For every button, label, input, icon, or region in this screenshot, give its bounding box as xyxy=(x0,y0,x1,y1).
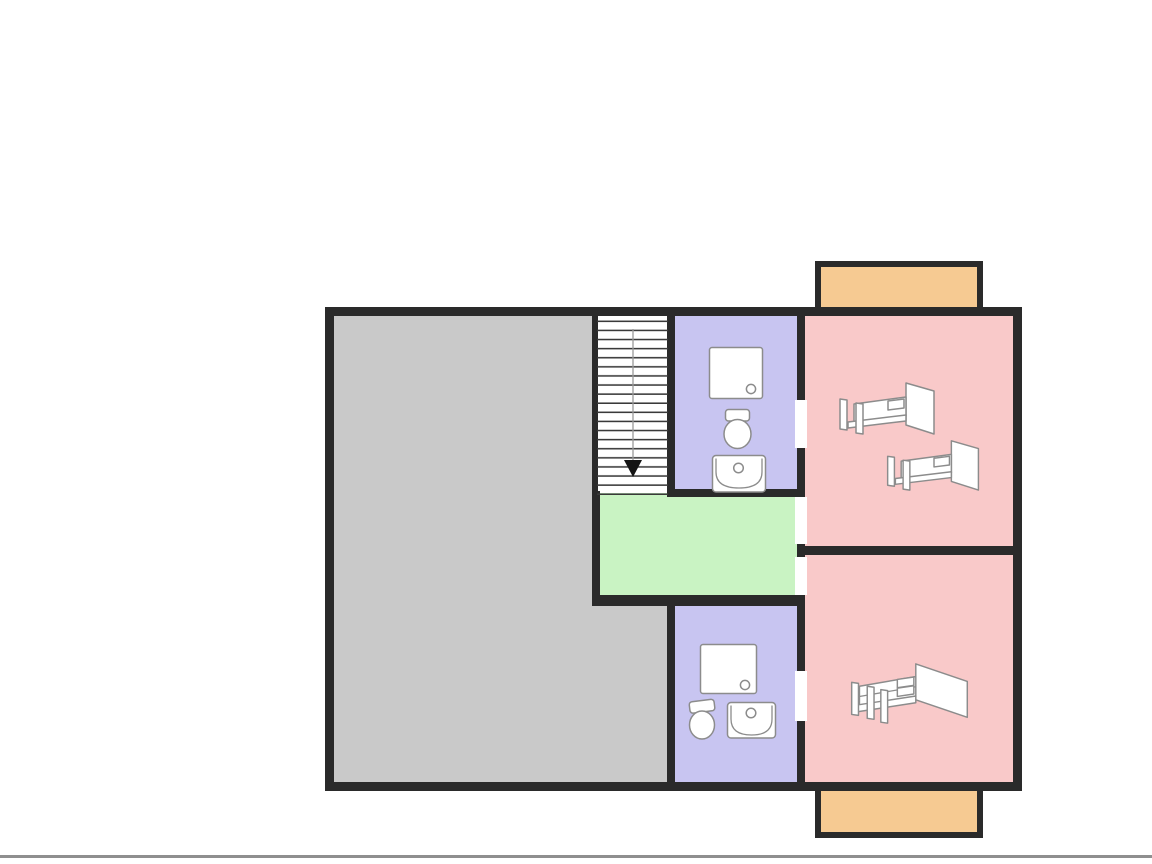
wall-bathroom-bottom-left xyxy=(667,600,675,791)
door-opening-bedroom-bottom xyxy=(795,557,807,595)
toilet-icon xyxy=(724,410,751,449)
door-opening-bathroom-bottom xyxy=(795,671,807,721)
wall-stairs-right xyxy=(667,313,675,497)
door-opening-bedroom-top xyxy=(795,497,807,544)
door-opening-bathroom-top xyxy=(795,400,807,448)
toilet-icon xyxy=(689,699,715,739)
wall-landing-left xyxy=(592,491,600,603)
sink-icon xyxy=(713,456,766,493)
shower-icon xyxy=(701,645,757,694)
bathroom-bottom-fixtures xyxy=(680,635,790,755)
wall-landing-bottom xyxy=(592,595,805,606)
shower-icon xyxy=(710,348,763,399)
video-frame-line xyxy=(0,855,1152,858)
room-landing xyxy=(596,493,802,598)
bathroom-top-fixtures xyxy=(700,345,780,495)
single-bed-icon xyxy=(878,430,990,500)
floor-plan-canvas xyxy=(0,0,1152,864)
double-bed-icon xyxy=(841,655,977,735)
stairs-icon xyxy=(597,313,668,495)
sink-icon xyxy=(728,703,776,739)
wall-bedrooms-divider xyxy=(797,546,1022,555)
wall-outer-left xyxy=(325,307,334,791)
